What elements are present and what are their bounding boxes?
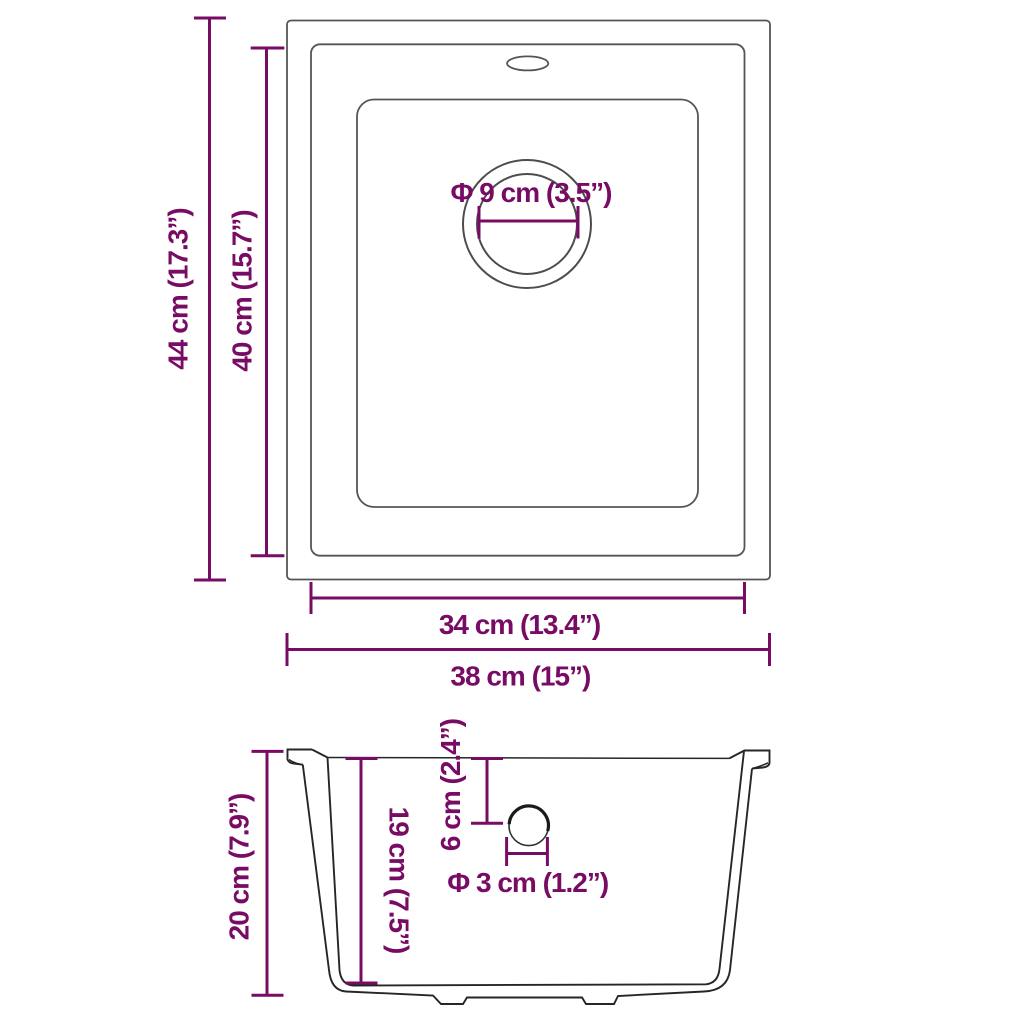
svg-text:19 cm (7.5”): 19 cm (7.5”): [384, 807, 415, 954]
svg-text:38 cm (15”): 38 cm (15”): [450, 661, 590, 692]
svg-text:Φ 3 cm (1.2”): Φ 3 cm (1.2”): [447, 867, 608, 898]
svg-text:40 cm (15.7”): 40 cm (15.7”): [227, 210, 258, 371]
svg-text:20 cm (7.9”): 20 cm (7.9”): [224, 794, 255, 941]
svg-text:6 cm (2.4”): 6 cm (2.4”): [435, 719, 466, 851]
svg-text:34 cm (13.4”): 34 cm (13.4”): [439, 609, 600, 640]
svg-text:Φ 9 cm (3.5”): Φ 9 cm (3.5”): [451, 177, 612, 208]
svg-text:44 cm (17.3”): 44 cm (17.3”): [163, 208, 194, 369]
